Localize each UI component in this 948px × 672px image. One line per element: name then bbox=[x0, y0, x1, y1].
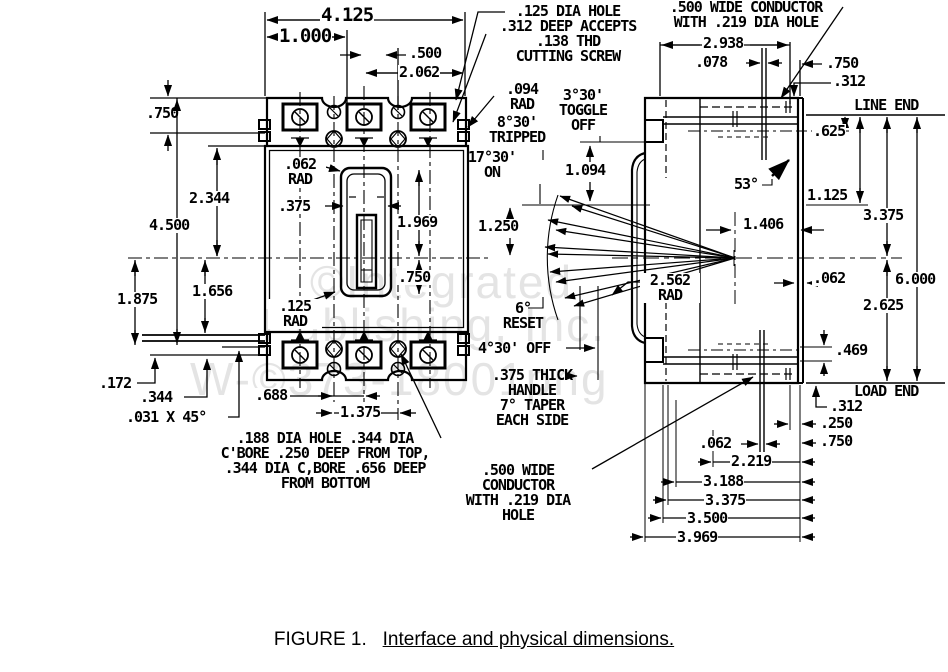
dim-625: .625 bbox=[812, 124, 846, 139]
on-angle-note: 17°30' ON bbox=[452, 150, 532, 180]
dim-1094: 1.094 bbox=[564, 163, 606, 178]
dim-1250: 1.250 bbox=[477, 219, 519, 234]
front-view-drawing bbox=[128, 86, 492, 420]
dim-2219: 2.219 bbox=[730, 454, 772, 469]
dim-53-degrees: 53° bbox=[733, 177, 759, 192]
conductor-note-bottom: .500 WIDE CONDUCTOR WITH .219 DIA HOLE bbox=[448, 463, 588, 523]
dim-4500: 4.500 bbox=[148, 218, 190, 233]
dim-6000: 6.000 bbox=[894, 272, 936, 287]
handle-taper-note: .375 THICK HANDLE 7° TAPER EACH SIDE bbox=[472, 368, 592, 428]
dim-312-line-side: .312 bbox=[833, 74, 865, 89]
dim-375: .375 bbox=[277, 199, 311, 214]
dim-469: .469 bbox=[834, 343, 868, 358]
off-angle-note: 4°30' OFF bbox=[478, 341, 550, 356]
dim-2344: 2.344 bbox=[188, 191, 230, 206]
toggle-off-angle-note: 3°30' TOGGLE OFF bbox=[548, 88, 618, 133]
dim-2625: 2.625 bbox=[862, 298, 904, 313]
dim-250: .250 bbox=[820, 416, 852, 431]
dim-overall-width: 4.125 bbox=[320, 6, 374, 25]
dim-1125: 1.125 bbox=[806, 188, 848, 203]
tripped-angle-note: 8°30' TRIPPED bbox=[477, 115, 557, 145]
conductor-note-top: .500 WIDE CONDUCTOR WITH .219 DIA HOLE bbox=[650, 0, 842, 30]
load-end-label: LOAD END bbox=[854, 384, 918, 399]
dim-062-bottom: .062 bbox=[698, 436, 732, 451]
radius-062-note: .062 RAD bbox=[274, 157, 326, 187]
dim-1406: 1.406 bbox=[742, 217, 784, 232]
dim-1875: 1.875 bbox=[116, 292, 158, 307]
dim-500: .500 bbox=[408, 46, 442, 61]
dim-3375-bottom: 3.375 bbox=[704, 493, 746, 508]
dim-2062: 2.062 bbox=[398, 65, 440, 80]
thread-cutting-screw-note: .125 DIA HOLE .312 DEEP ACCEPTS .138 THD… bbox=[482, 4, 654, 64]
dim-1656: 1.656 bbox=[191, 284, 233, 299]
dim-3500: 3.500 bbox=[686, 511, 728, 526]
dim-750-load-side: .750 bbox=[820, 434, 852, 449]
dim-750-mid: .750 bbox=[397, 270, 431, 285]
figure-page: ©Integrated Publishing, Inc. W-©373-1800… bbox=[0, 0, 948, 672]
dim-750-top: .750 bbox=[146, 106, 178, 121]
dim-750-line-side: .750 bbox=[826, 56, 858, 71]
figure-caption: FIGURE 1. Interface and physical dimensi… bbox=[0, 629, 948, 651]
dim-062-right: .062 bbox=[812, 271, 846, 286]
dim-3969: 3.969 bbox=[676, 530, 718, 545]
drawing-canvas bbox=[0, 0, 948, 672]
figure-title: Interface and physical dimensions. bbox=[383, 629, 675, 650]
dim-312-load-side: .312 bbox=[830, 399, 862, 414]
reset-angle-note: 6° RESET bbox=[492, 301, 554, 331]
counterbore-note: .188 DIA HOLE .344 DIA C'BORE .250 DEEP … bbox=[205, 431, 445, 491]
dim-078: .078 bbox=[694, 55, 728, 70]
dim-1969: 1.969 bbox=[396, 215, 438, 230]
dim-3188: 3.188 bbox=[702, 474, 744, 489]
radius-2562-note: 2.562 RAD bbox=[640, 273, 700, 303]
dim-1000: 1.000 bbox=[278, 27, 332, 46]
dim-344: .344 bbox=[140, 390, 172, 405]
dim-3375-right: 3.375 bbox=[862, 208, 904, 223]
radius-125-note: .125 RAD bbox=[268, 299, 322, 329]
radius-094-note: .094 RAD bbox=[494, 82, 550, 112]
dim-172: .172 bbox=[99, 376, 131, 391]
dim-1375: 1.375 bbox=[339, 405, 381, 420]
dim-688: .688 bbox=[254, 388, 288, 403]
chamfer-note: .031 X 45° bbox=[126, 410, 206, 425]
line-end-label: LINE END bbox=[854, 98, 918, 113]
dim-2938: 2.938 bbox=[702, 36, 744, 51]
figure-number: FIGURE 1. bbox=[274, 629, 367, 650]
